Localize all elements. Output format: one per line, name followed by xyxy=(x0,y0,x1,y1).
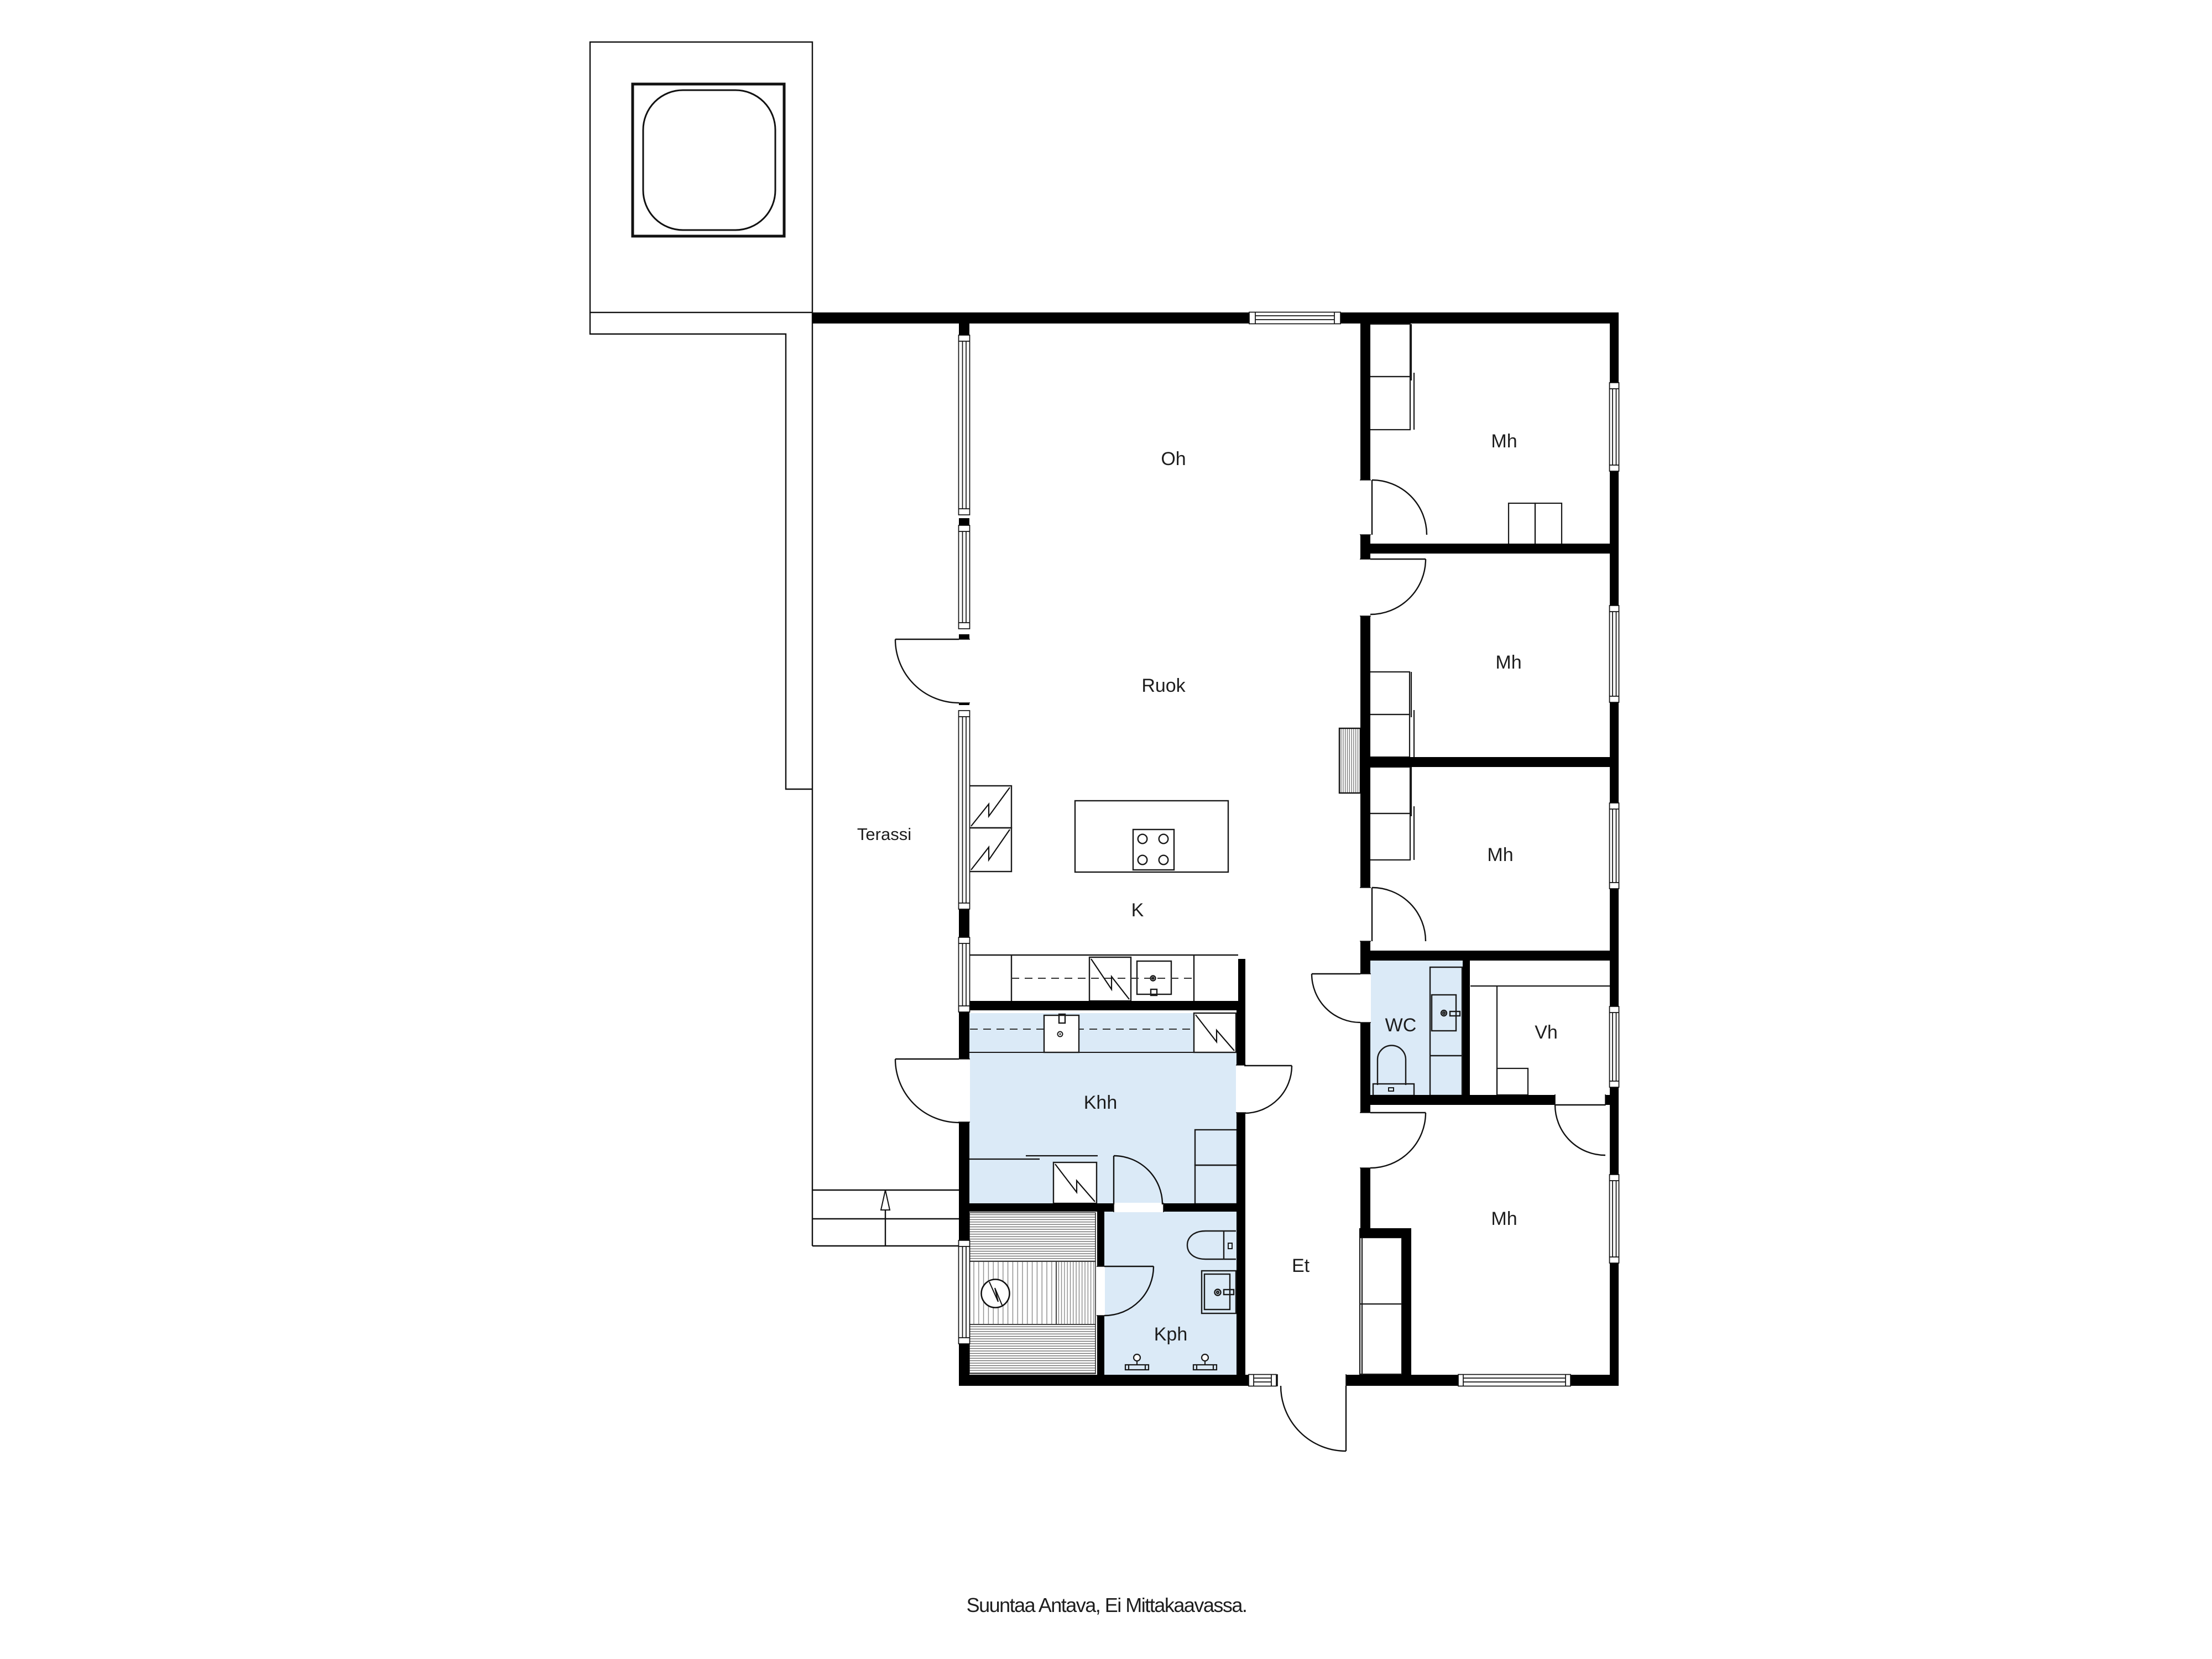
svg-text:Mh: Mh xyxy=(1491,431,1517,452)
svg-text:Mh: Mh xyxy=(1495,652,1521,673)
svg-text:Vh: Vh xyxy=(1535,1022,1558,1043)
svg-text:Khh: Khh xyxy=(1084,1092,1118,1113)
svg-text:Mh: Mh xyxy=(1487,844,1513,865)
svg-text:Suuntaa Antava, Ei Mittakaavas: Suuntaa Antava, Ei Mittakaavassa. xyxy=(967,1594,1247,1616)
svg-text:Kph: Kph xyxy=(1154,1324,1188,1345)
svg-text:Mh: Mh xyxy=(1491,1208,1517,1229)
svg-text:Et: Et xyxy=(1292,1255,1310,1276)
svg-text:WC: WC xyxy=(1385,1015,1417,1036)
svg-text:Terassi: Terassi xyxy=(857,825,911,844)
svg-text:Ruok: Ruok xyxy=(1141,675,1186,696)
svg-text:K: K xyxy=(1131,900,1144,921)
svg-text:Oh: Oh xyxy=(1161,448,1186,469)
